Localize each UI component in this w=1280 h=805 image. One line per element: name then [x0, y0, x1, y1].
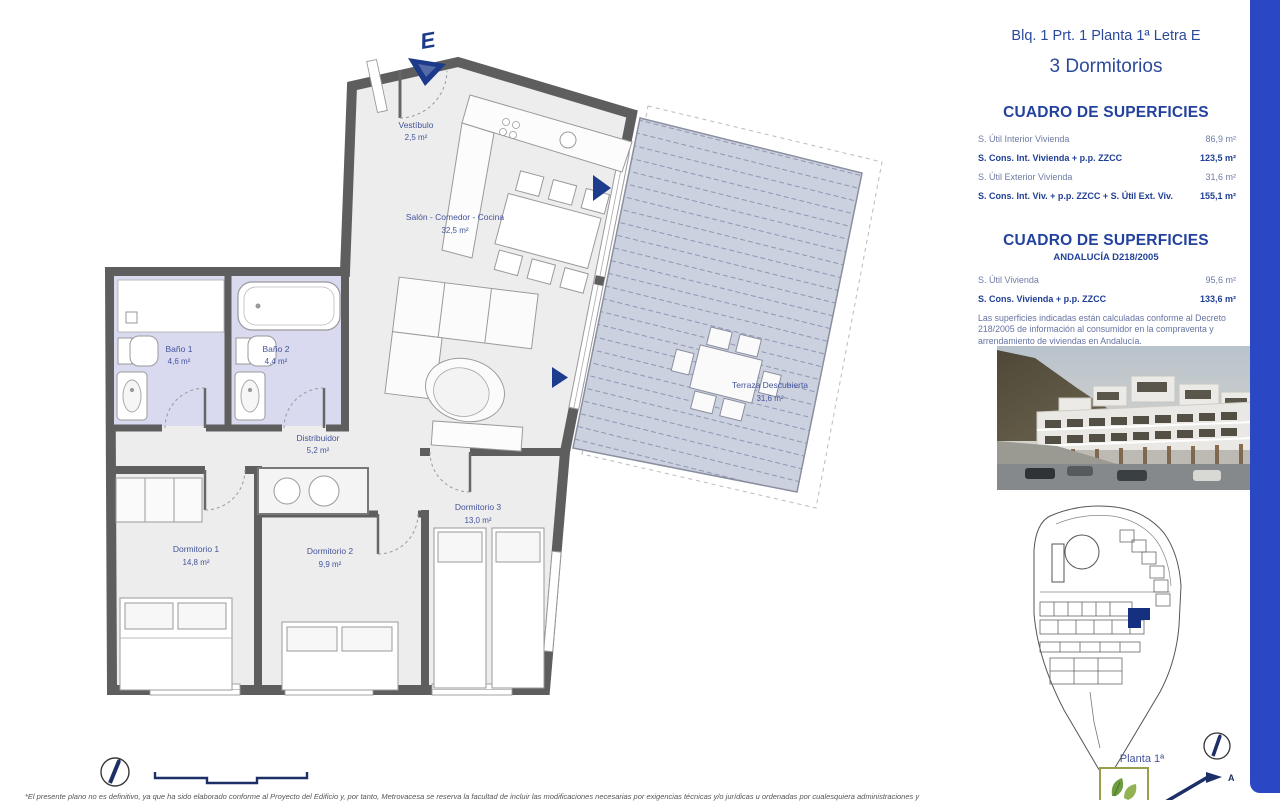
surfaces-table-2: CUADRO DE SUPERFICIES ANDALUCÍA D218/200… [970, 232, 1242, 347]
floorplan-svg: E Vestíbulo 2,5 m² Salón - Comedor - Coc… [0, 0, 965, 800]
site-outline [1034, 506, 1181, 774]
row-label: S. Cons. Vivienda + p.p. ZZCC [978, 290, 1106, 309]
label-distribuidor: Distribuidor [297, 433, 340, 443]
accent-bar [1250, 0, 1280, 793]
row-value: 123,5 m² [1200, 149, 1236, 168]
row-label: S. Útil Vivienda [978, 271, 1039, 290]
table-row: S. Cons. Int. Vivienda + p.p. ZZCC 123,5… [978, 149, 1236, 168]
row-value: 133,6 m² [1200, 290, 1236, 309]
siteplan: Planta 1ª A [1020, 496, 1255, 800]
building-render-svg [997, 346, 1263, 490]
area-vestibulo: 2,5 m² [405, 133, 428, 142]
surfaces-table-2-subtitle: ANDALUCÍA D218/2005 [970, 252, 1242, 263]
decree-note: Las superficies indicadas están calculad… [978, 313, 1236, 347]
wardrobe-dorm1 [116, 478, 202, 522]
table-row: S. Útil Vivienda 95,6 m² [978, 271, 1236, 290]
bed-dorm2 [282, 622, 398, 690]
label-bano1: Baño 1 [166, 344, 193, 354]
scale-bar [155, 772, 307, 783]
north-arrow-label: A [1228, 773, 1235, 783]
row-value: 155,1 m² [1200, 187, 1236, 206]
table-row: S. Cons. Int. Viv. + p.p. ZZCC + S. Útil… [978, 187, 1236, 206]
entrance-letter: E [418, 27, 438, 54]
area-bano1: 4,6 m² [168, 357, 191, 366]
row-label: S. Cons. Int. Vivienda + p.p. ZZCC [978, 149, 1122, 168]
label-terraza: Terraza Descubierta [732, 380, 808, 390]
info-panel: Blq. 1 Prt. 1 Planta 1ª Letra E 3 Dormit… [970, 0, 1242, 347]
label-dorm2: Dormitorio 2 [307, 546, 354, 556]
row-value: 86,9 m² [1205, 130, 1236, 149]
unit-title: Blq. 1 Prt. 1 Planta 1ª Letra E [970, 28, 1242, 44]
site-block-diagonal [1120, 530, 1170, 606]
laundry-closet [258, 468, 368, 514]
floorplan: E Vestíbulo 2,5 m² Salón - Comedor - Coc… [0, 0, 965, 800]
surfaces-table-2-title: CUADRO DE SUPERFICIES [970, 232, 1242, 250]
label-bano2: Baño 2 [263, 344, 290, 354]
siteplan-floor-label: Planta 1ª [1120, 753, 1165, 765]
label-dorm3: Dormitorio 3 [455, 502, 502, 512]
unit-subtitle: 3 Dormitorios [970, 56, 1242, 78]
row-label: S. Útil Exterior Vivienda [978, 168, 1072, 187]
siteplan-compass-icon [1204, 733, 1230, 759]
label-vestibulo: Vestíbulo [399, 120, 434, 130]
building-render-image [997, 346, 1263, 490]
highlighted-unit [1128, 608, 1150, 628]
row-value: 31,6 m² [1205, 168, 1236, 187]
shower-drain [126, 312, 137, 323]
surfaces-table-1: CUADRO DE SUPERFICIES S. Útil Interior V… [970, 104, 1242, 206]
scale-area [95, 750, 335, 796]
bed-dorm1 [120, 598, 232, 690]
area-terraza: 31,6 m² [756, 394, 783, 403]
row-label: S. Cons. Int. Viv. + p.p. ZZCC + S. Útil… [978, 187, 1173, 206]
bathtub-drain [256, 304, 261, 309]
surfaces-table-1-title: CUADRO DE SUPERFICIES [970, 104, 1242, 122]
area-bano2: 4,4 m² [265, 357, 288, 366]
table-row: S. Útil Exterior Vivienda 31,6 m² [978, 168, 1236, 187]
table-row: S. Cons. Vivienda + p.p. ZZCC 133,6 m² [978, 290, 1236, 309]
area-distribuidor: 5,2 m² [307, 446, 330, 455]
area-dorm2: 9,9 m² [319, 560, 342, 569]
row-value: 95,6 m² [1205, 271, 1236, 290]
siteplan-svg: Planta 1ª A [1020, 496, 1255, 800]
label-salon: Salón - Comedor - Cocina [406, 212, 505, 222]
area-dorm3: 13,0 m² [464, 516, 491, 525]
row-label: S. Útil Interior Vivienda [978, 130, 1069, 149]
area-salon: 32,5 m² [441, 226, 468, 235]
area-dorm1: 14,8 m² [182, 558, 209, 567]
plan-compass-icon [101, 758, 129, 786]
scale-svg [95, 750, 335, 796]
label-dorm1: Dormitorio 1 [173, 544, 220, 554]
shower-bano1 [118, 280, 224, 332]
bathtub [238, 282, 340, 330]
table-row: S. Útil Interior Vivienda 86,9 m² [978, 130, 1236, 149]
